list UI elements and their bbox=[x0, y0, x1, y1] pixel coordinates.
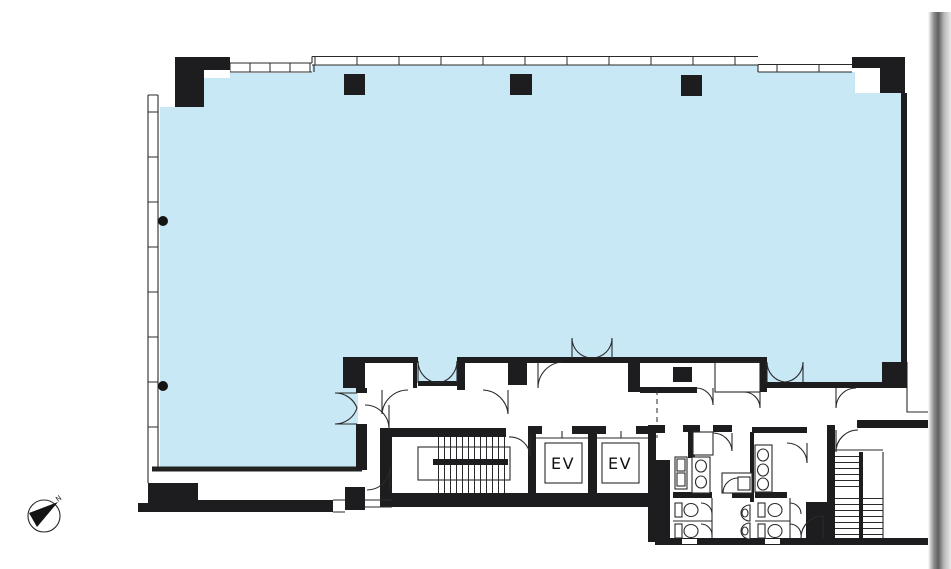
scan-shadow bbox=[928, 12, 951, 569]
column bbox=[344, 74, 365, 95]
floor-fill-region bbox=[160, 65, 902, 467]
toilet-tank bbox=[675, 503, 682, 517]
south-exterior-walls bbox=[138, 483, 365, 512]
core-south-wall bbox=[380, 493, 650, 507]
floor-plan: EV EV bbox=[0, 0, 951, 569]
corner-pier-northeast bbox=[852, 57, 905, 93]
elevator-2-label: EV bbox=[608, 454, 632, 473]
corner-block-southeast bbox=[882, 362, 907, 388]
right-facade-outline bbox=[907, 362, 930, 420]
closet bbox=[693, 432, 713, 455]
column bbox=[681, 75, 702, 96]
compass-needle bbox=[29, 502, 58, 527]
compass-north-label: N bbox=[54, 494, 63, 504]
toilet-tank bbox=[758, 503, 765, 517]
stairwell-secondary bbox=[835, 450, 883, 538]
toilet bbox=[684, 525, 698, 538]
core-west-column bbox=[343, 357, 365, 388]
corridor-north-wall-east bbox=[857, 420, 937, 428]
toilet-tank bbox=[675, 524, 682, 538]
toilet-tank bbox=[758, 524, 765, 538]
column bbox=[673, 367, 692, 382]
plumbing-wall bbox=[648, 425, 656, 460]
toilet bbox=[768, 504, 782, 517]
restroom-east-wall bbox=[827, 425, 835, 545]
right-exterior-wall bbox=[901, 93, 907, 362]
scanned-floor-plan-page: EV EV bbox=[0, 0, 951, 569]
elevator-1-label: EV bbox=[551, 454, 575, 473]
stair-rail bbox=[859, 452, 863, 538]
elevator-shaft-2: EV bbox=[602, 443, 639, 483]
column bbox=[510, 74, 532, 95]
toilet bbox=[768, 525, 782, 538]
north-compass: N bbox=[28, 494, 63, 532]
restrooms bbox=[655, 425, 932, 545]
stairwell-main bbox=[380, 428, 510, 493]
wall-dot bbox=[158, 381, 168, 391]
toilet bbox=[684, 504, 698, 517]
stair-landing-bar bbox=[433, 459, 508, 465]
elevator-bank: EV EV bbox=[528, 425, 670, 542]
plumbing-wall-lower bbox=[648, 460, 670, 542]
elevator-shaft-1: EV bbox=[545, 443, 582, 483]
wall-dot bbox=[158, 216, 168, 226]
open-office-area bbox=[152, 65, 902, 469]
